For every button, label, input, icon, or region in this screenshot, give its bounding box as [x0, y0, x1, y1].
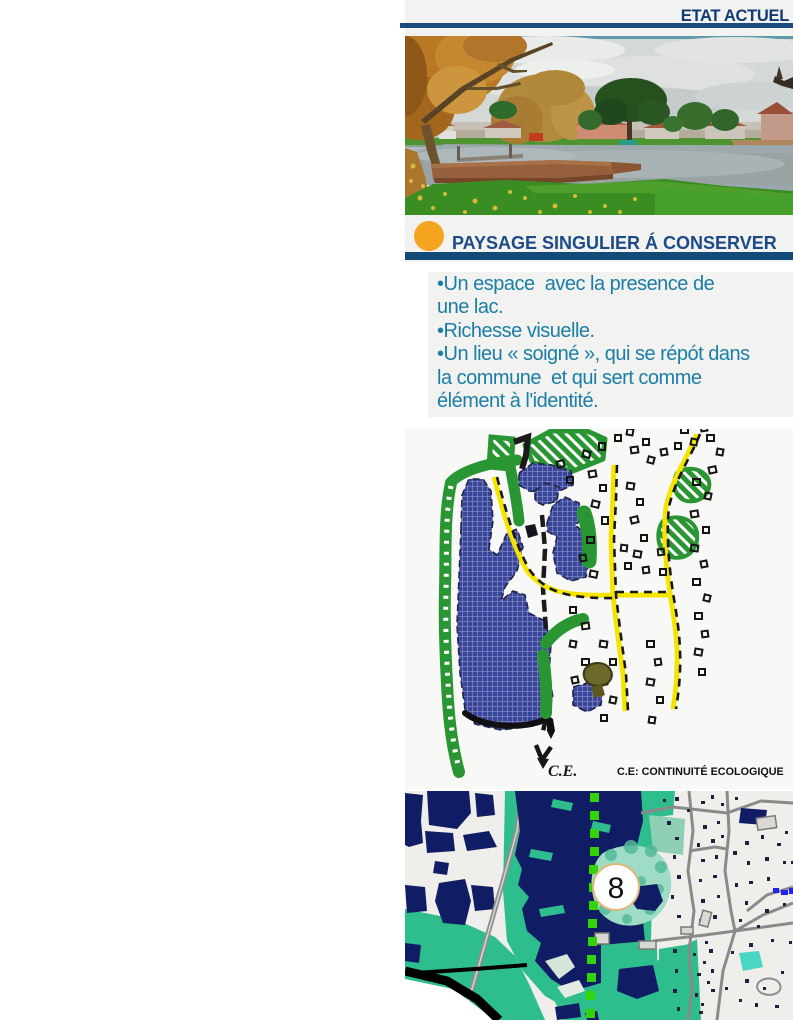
svg-text:8: 8 [608, 872, 625, 905]
svg-text:C.E: CONTINUITÉ ECOLOGIQUE: C.E: CONTINUITÉ ECOLOGIQUE [617, 765, 784, 778]
svg-text:C.E.: C.E. [548, 763, 577, 780]
